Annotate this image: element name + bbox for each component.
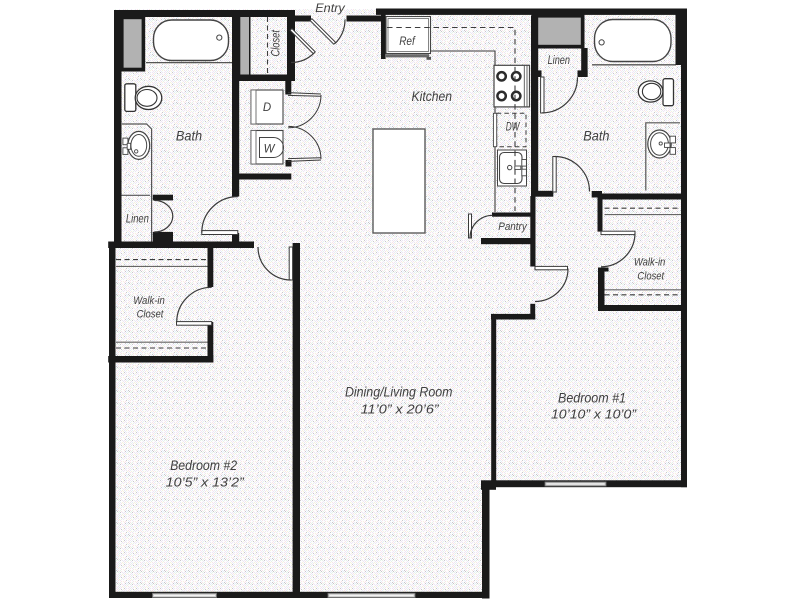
svg-text:Bedroom #2: Bedroom #2	[170, 458, 237, 473]
svg-text:10’5” x 13’2”: 10’5” x 13’2”	[166, 474, 245, 489]
svg-text:Bath: Bath	[583, 128, 609, 143]
svg-text:Linen: Linen	[548, 55, 570, 67]
svg-text:Entry: Entry	[315, 1, 346, 15]
svg-text:Walk-in: Walk-in	[634, 256, 666, 268]
svg-text:Linen: Linen	[126, 213, 149, 225]
svg-text:Dining/Living Room: Dining/Living Room	[345, 385, 453, 400]
svg-text:Pantry: Pantry	[498, 221, 528, 233]
svg-text:11’0” x 20’6”: 11’0” x 20’6”	[361, 402, 440, 417]
svg-text:Closet: Closet	[137, 309, 165, 321]
svg-text:Ref: Ref	[399, 36, 416, 48]
svg-text:Bedroom #1: Bedroom #1	[558, 390, 626, 405]
svg-text:D: D	[263, 102, 271, 114]
svg-text:10’10” x 10’0”: 10’10” x 10’0”	[551, 407, 637, 422]
svg-text:DW: DW	[506, 122, 521, 134]
svg-text:Closet: Closet	[637, 270, 665, 282]
svg-text:Walk-in: Walk-in	[133, 295, 165, 307]
svg-text:Bath: Bath	[176, 128, 202, 143]
svg-text:Closet: Closet	[271, 29, 283, 56]
svg-text:W: W	[264, 143, 276, 155]
svg-text:Kitchen: Kitchen	[412, 89, 453, 104]
